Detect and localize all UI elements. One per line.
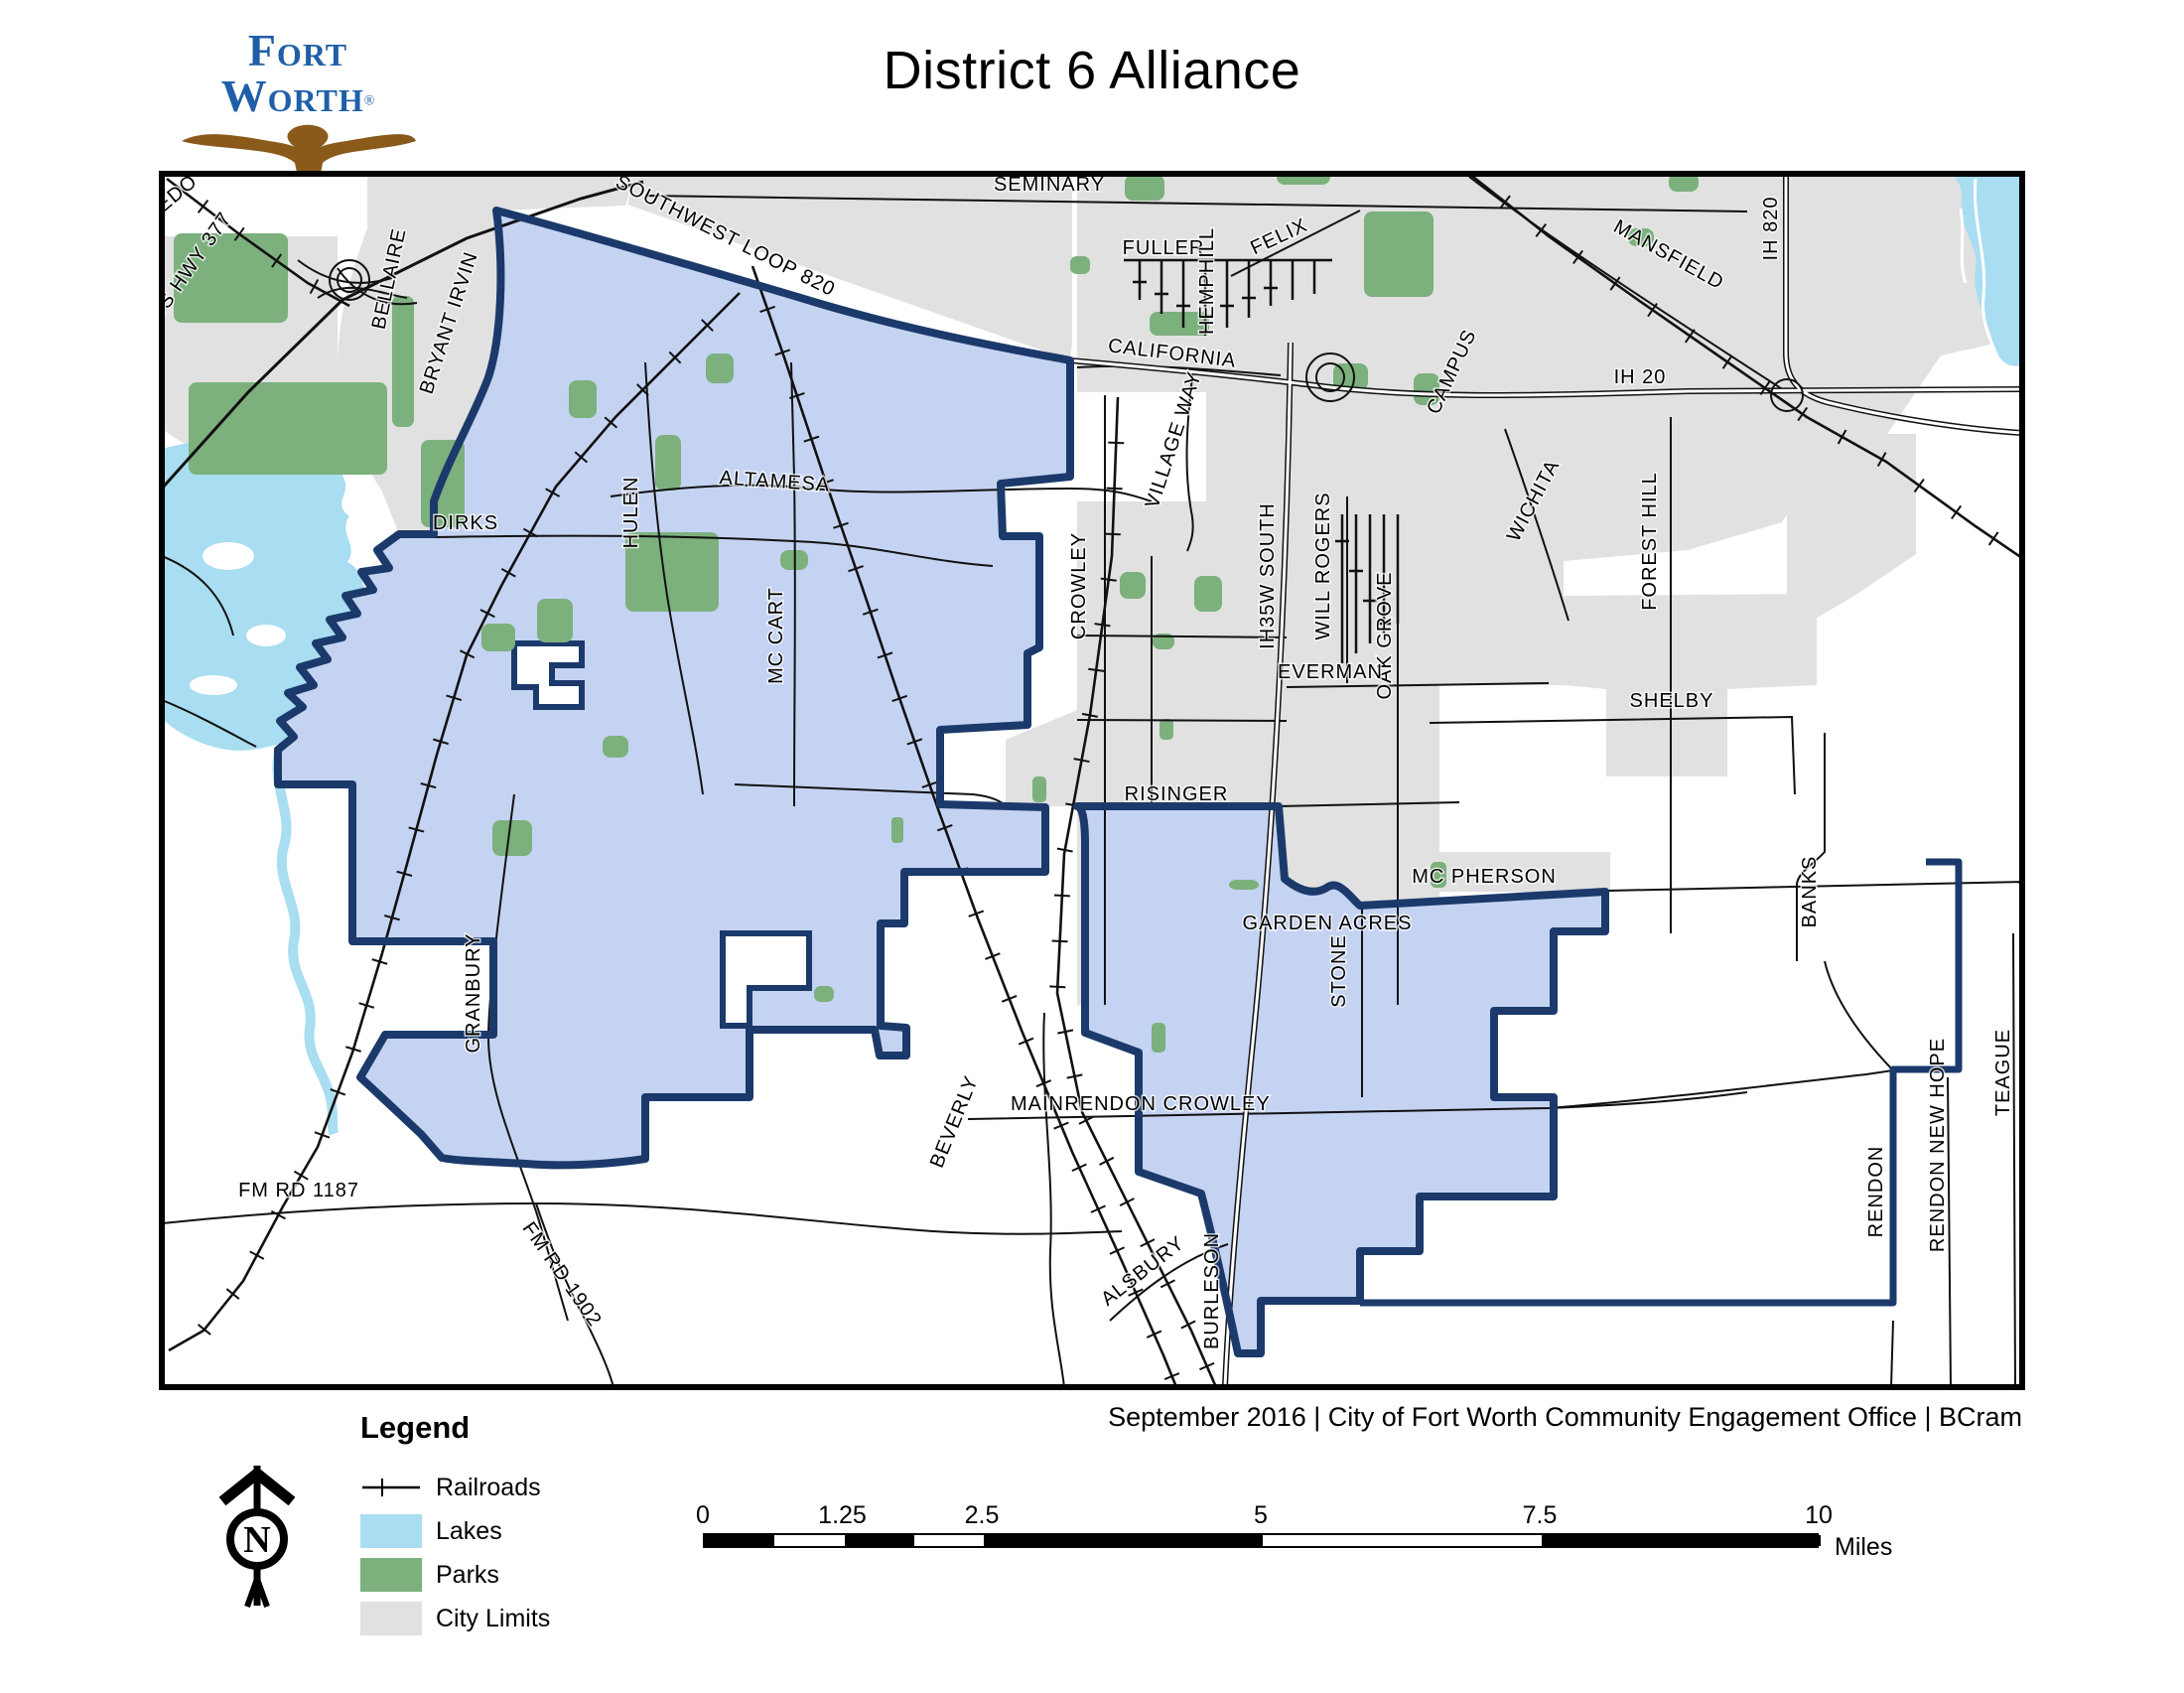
- scale-tick-label: 10: [1805, 1501, 1833, 1530]
- park-area: [392, 296, 414, 427]
- road-label: IH 20: [1614, 366, 1667, 388]
- road-label: MC PHERSON: [1412, 866, 1557, 888]
- road-label: STONE: [1328, 934, 1350, 1008]
- park-area: [492, 820, 532, 856]
- color-swatch: [360, 1602, 422, 1635]
- scale-segment: [845, 1535, 914, 1546]
- park-area: [1160, 719, 1173, 740]
- park-area: [706, 353, 734, 383]
- park-area: [655, 435, 681, 491]
- road-label: IH35W SOUTH: [1257, 502, 1279, 649]
- road-label: BANKS: [1799, 856, 1821, 928]
- road-label: FULLER: [1123, 237, 1205, 259]
- park-area: [1229, 880, 1259, 890]
- park-area: [537, 599, 573, 642]
- legend-item-city-limits: City Limits: [360, 1597, 550, 1640]
- park-area: [1194, 576, 1222, 612]
- park-area: [481, 624, 515, 651]
- scale-segment: [984, 1535, 1263, 1546]
- road-label: HULEN: [620, 477, 642, 549]
- scale-bar: 01.252.557.510 Miles: [703, 1501, 1894, 1561]
- legend-item-label: Railroads: [436, 1474, 541, 1502]
- color-swatch: [360, 1558, 422, 1592]
- scale-segment: [1542, 1535, 1821, 1546]
- road-label: RENDON NEW HOPE: [1927, 1038, 1949, 1252]
- park-area: [891, 817, 903, 843]
- scale-segment: [774, 1535, 844, 1546]
- map-canvas: ALEDOUS HWY 377SEMINARYSOUTHWEST LOOP 82…: [0, 0, 2184, 1688]
- scale-segment: [914, 1535, 984, 1546]
- park-area: [1120, 572, 1146, 599]
- legend-item-label: Parks: [436, 1561, 499, 1590]
- road-label: GARDEN ACRES: [1243, 913, 1413, 934]
- road-label: SHELBY: [1630, 690, 1714, 712]
- legend-item-lakes: Lakes: [360, 1509, 550, 1553]
- road-label: IH 820: [1760, 197, 1782, 261]
- road-label: DIRKS: [433, 512, 498, 534]
- park-area: [1125, 175, 1164, 201]
- park-area: [1070, 256, 1090, 274]
- road-label: RENDON: [1865, 1146, 1887, 1238]
- scale-unit: Miles: [1835, 1533, 1892, 1562]
- road-label: MC CART: [765, 587, 787, 684]
- scale-segment: [1263, 1535, 1542, 1546]
- scale-tick-label: 5: [1254, 1501, 1268, 1530]
- road-label: RISINGER: [1125, 783, 1229, 805]
- road-label: FOREST HILL: [1639, 472, 1661, 611]
- scale-tick-label: 0: [696, 1501, 710, 1530]
- railroad-symbol: [360, 1471, 422, 1504]
- park-area: [814, 986, 834, 1002]
- road-label: BURLESON: [1201, 1232, 1223, 1349]
- park-area: [569, 380, 597, 418]
- scale-segment: [705, 1535, 774, 1546]
- north-arrow: N: [210, 1452, 310, 1621]
- color-swatch: [360, 1514, 422, 1548]
- road-label: CROWLEY: [1068, 532, 1090, 639]
- park-area: [1364, 212, 1433, 297]
- road-label: FM RD 1187: [238, 1180, 359, 1201]
- north-letter: N: [243, 1519, 270, 1561]
- legend-item-label: City Limits: [436, 1605, 550, 1633]
- scale-tick-label: 2.5: [965, 1501, 1000, 1530]
- scale-tick-label: 7.5: [1523, 1501, 1558, 1530]
- legend: Legend RailroadsLakesParksCity Limits: [360, 1410, 550, 1640]
- legend-item-parks: Parks: [360, 1553, 550, 1597]
- road-label: WILL ROGERS: [1312, 492, 1334, 639]
- road-label: TEAGUE: [1992, 1029, 2014, 1116]
- park-area: [1152, 1023, 1165, 1053]
- legend-title: Legend: [360, 1410, 550, 1446]
- park-area: [603, 736, 628, 758]
- road-label: EVERMAN: [1278, 661, 1383, 683]
- park-area: [298, 427, 385, 473]
- road-label: HEMPHILL: [1196, 227, 1218, 335]
- park-area: [1277, 153, 1330, 185]
- legend-item-railroads: Railroads: [360, 1466, 550, 1509]
- legend-item-label: Lakes: [436, 1517, 502, 1546]
- road-label: SEMINARY: [994, 174, 1105, 196]
- attribution-text: September 2016 | City of Fort Worth Comm…: [1108, 1402, 2022, 1433]
- road-label: GRANBURY: [463, 933, 484, 1054]
- park-area: [1032, 776, 1046, 802]
- road-label: MAIN: [1011, 1093, 1064, 1115]
- scale-tick-label: 1.25: [818, 1501, 867, 1530]
- road-label: RENDON CROWLEY: [1064, 1093, 1270, 1115]
